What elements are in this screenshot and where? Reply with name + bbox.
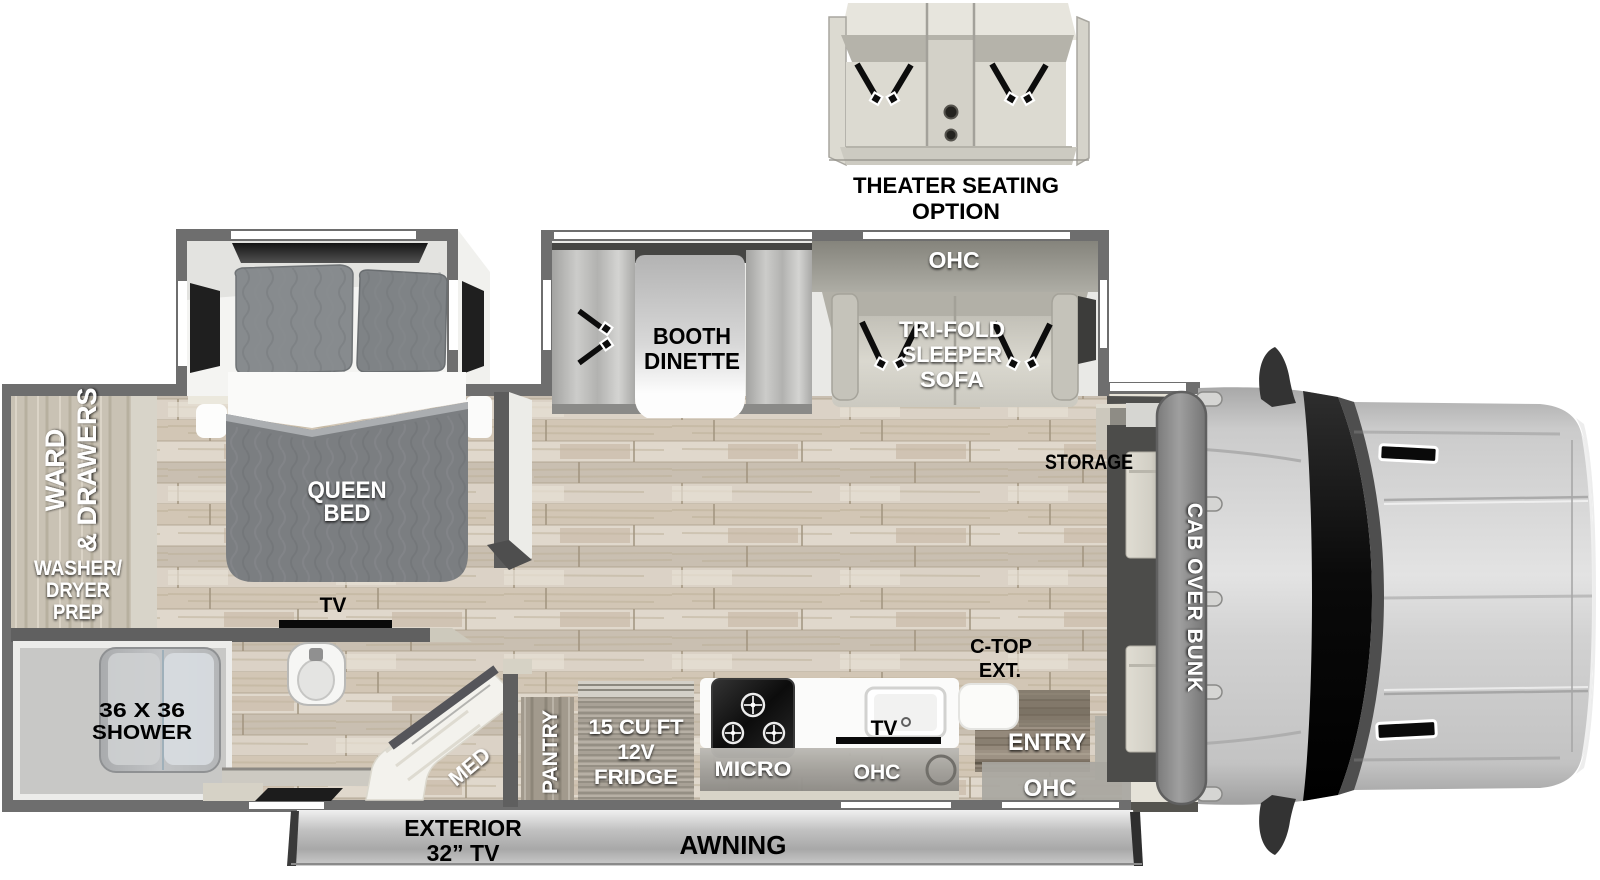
svg-text:STORAGE: STORAGE <box>1045 451 1133 474</box>
svg-text:32” TV: 32” TV <box>427 840 501 866</box>
svg-text:CAB OVER BUNK: CAB OVER BUNK <box>1183 503 1206 693</box>
svg-text:THEATER SEATING: THEATER SEATING <box>853 173 1059 198</box>
svg-text:& DRAWERS: & DRAWERS <box>72 387 102 552</box>
svg-text:BOOTH: BOOTH <box>653 323 731 349</box>
svg-text:15 CU FT: 15 CU FT <box>589 716 684 739</box>
svg-text:AWNING: AWNING <box>680 830 787 860</box>
svg-text:EXTERIOR: EXTERIOR <box>404 815 522 841</box>
svg-text:TV: TV <box>320 594 347 617</box>
svg-text:DINETTE: DINETTE <box>644 348 740 374</box>
svg-text:ENTRY: ENTRY <box>1008 729 1086 756</box>
svg-text:WARD: WARD <box>40 429 70 512</box>
svg-text:PREP: PREP <box>53 601 103 624</box>
svg-text:SLEEPER: SLEEPER <box>902 342 1002 367</box>
svg-text:C-TOP: C-TOP <box>970 636 1032 658</box>
svg-text:EXT.: EXT. <box>979 660 1021 682</box>
svg-text:TV: TV <box>871 717 898 740</box>
svg-text:12V: 12V <box>617 741 654 764</box>
svg-text:PANTRY: PANTRY <box>539 710 562 794</box>
svg-text:OPTION: OPTION <box>912 199 1000 224</box>
svg-text:36 X 36: 36 X 36 <box>99 700 185 722</box>
svg-text:MICRO: MICRO <box>715 758 792 781</box>
svg-text:OHC: OHC <box>1024 775 1077 802</box>
svg-text:BED: BED <box>324 500 371 527</box>
svg-text:SOFA: SOFA <box>920 367 984 392</box>
svg-text:FRIDGE: FRIDGE <box>594 766 678 789</box>
svg-text:OHC: OHC <box>928 247 979 273</box>
svg-text:TRI-FOLD: TRI-FOLD <box>899 317 1005 342</box>
svg-text:SHOWER: SHOWER <box>92 722 193 744</box>
svg-text:WASHER/: WASHER/ <box>34 557 122 580</box>
svg-text:OHC: OHC <box>854 761 901 784</box>
svg-text:DRYER: DRYER <box>46 579 110 602</box>
